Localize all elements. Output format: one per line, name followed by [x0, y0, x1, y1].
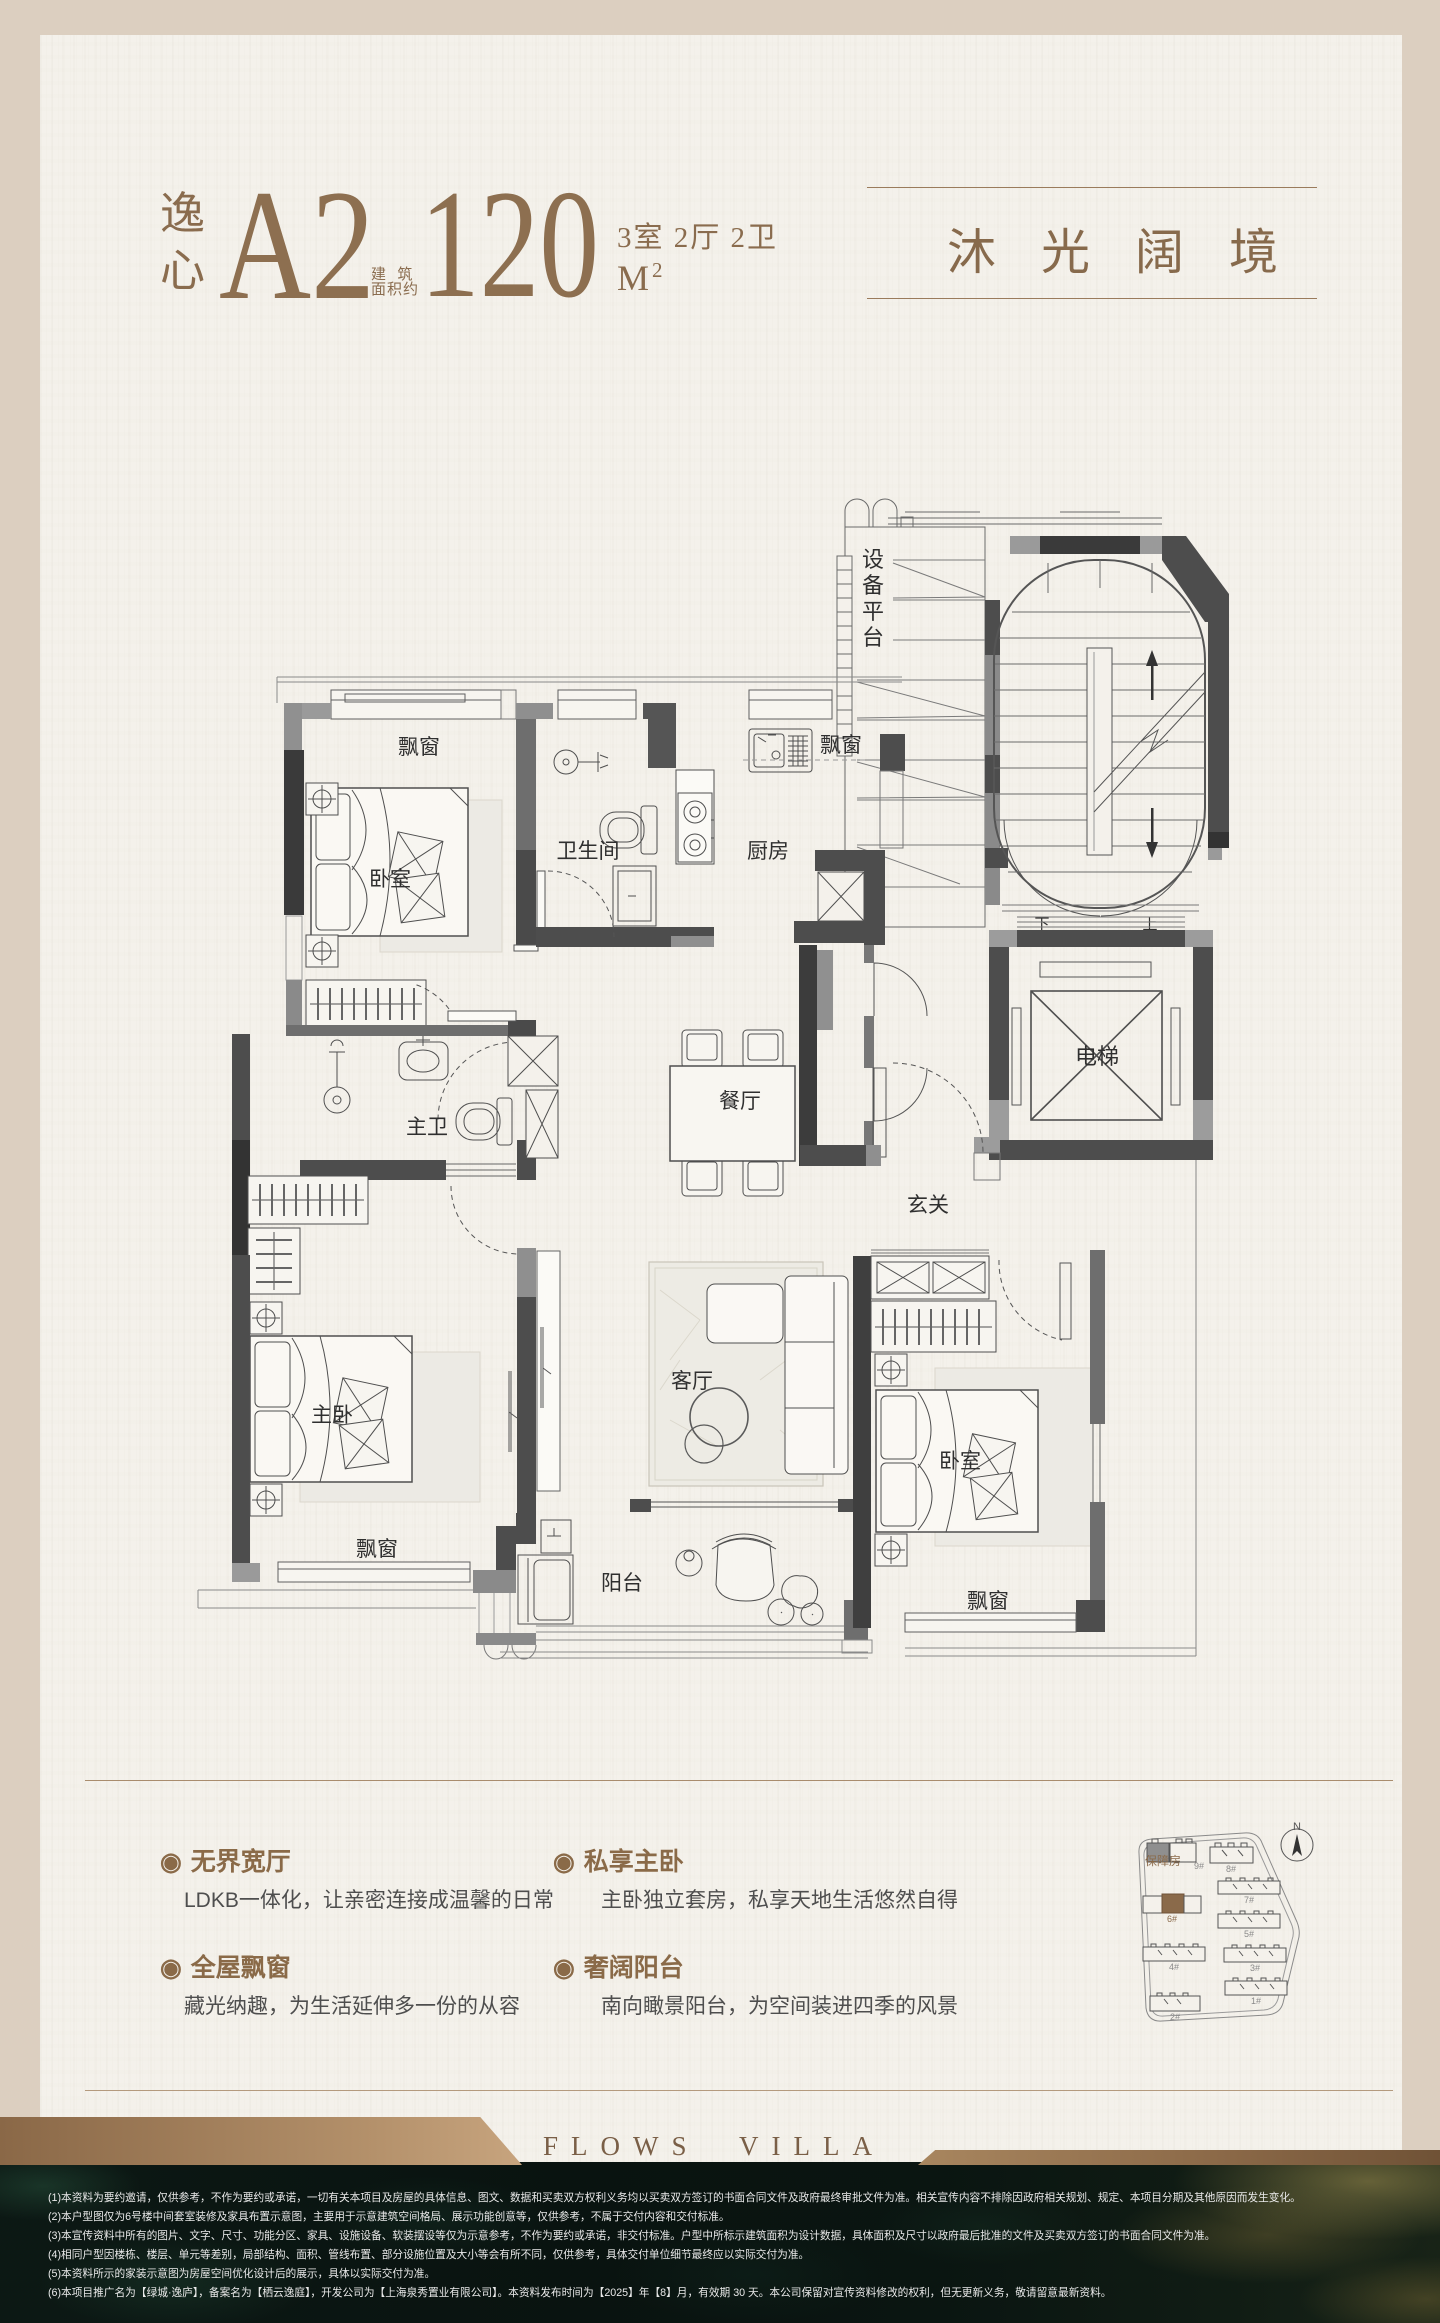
svg-text:2#: 2# [1170, 2012, 1180, 2022]
svg-text:7#: 7# [1244, 1895, 1254, 1905]
svg-text:N: N [1293, 1821, 1301, 1833]
svg-text:8#: 8# [1226, 1864, 1236, 1874]
svg-text:6#: 6# [1167, 1914, 1177, 1924]
svg-text:3#: 3# [1250, 1963, 1260, 1973]
svg-text:1#: 1# [1251, 1996, 1261, 2006]
svg-text:5#: 5# [1244, 1929, 1254, 1939]
svg-text:4#: 4# [1169, 1962, 1179, 1972]
svg-text:保障房: 保障房 [1145, 1853, 1181, 1868]
svg-text:9#: 9# [1194, 1861, 1204, 1871]
